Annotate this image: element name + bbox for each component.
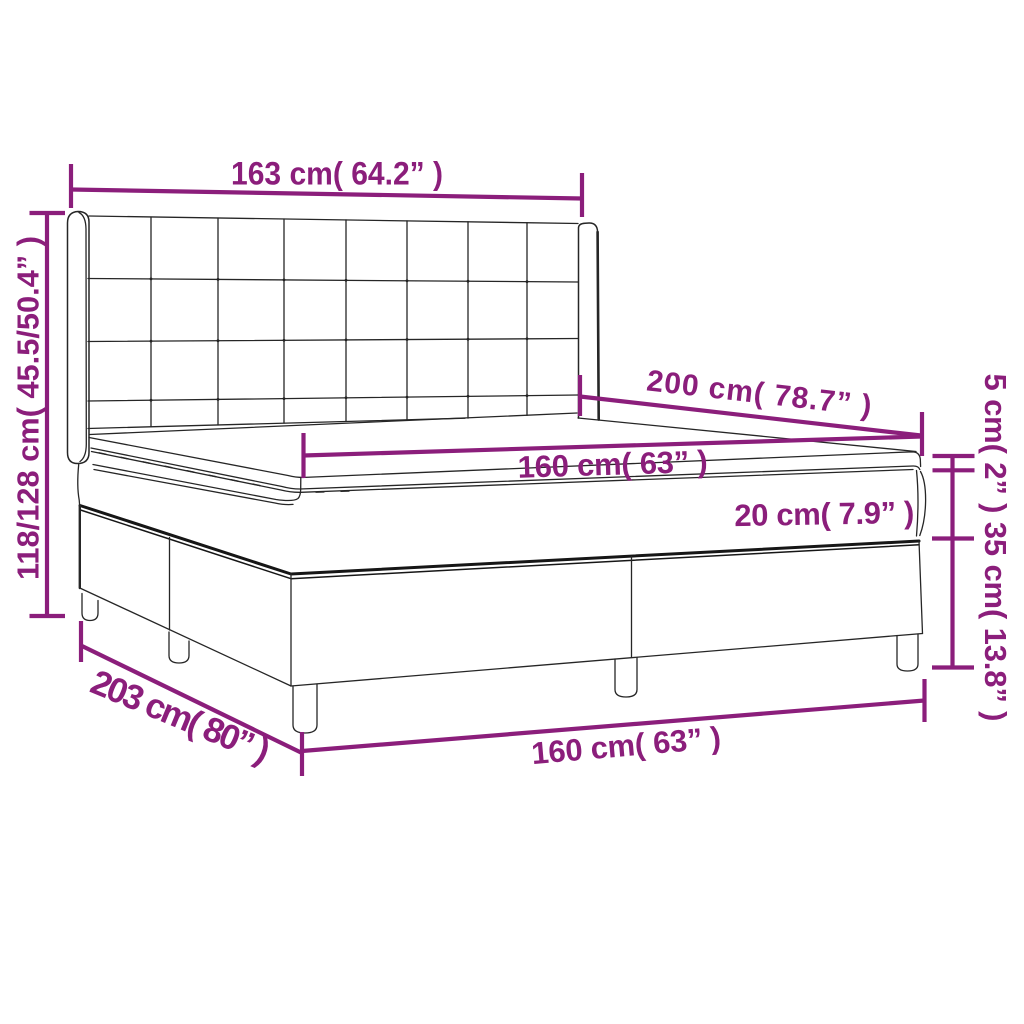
svg-text:118/128 cm( 45.5/50.4” ): 118/128 cm( 45.5/50.4” ) [11, 236, 46, 580]
svg-text:160 cm( 63” ): 160 cm( 63” ) [517, 444, 708, 485]
svg-text:163 cm( 64.2” ): 163 cm( 64.2” ) [231, 156, 443, 192]
svg-text:20 cm( 7.9” ): 20 cm( 7.9” ) [734, 495, 915, 533]
svg-text:5 cm( 2” ) 35 cm( 13.8” ): 5 cm( 2” ) 35 cm( 13.8” ) [978, 374, 1013, 722]
